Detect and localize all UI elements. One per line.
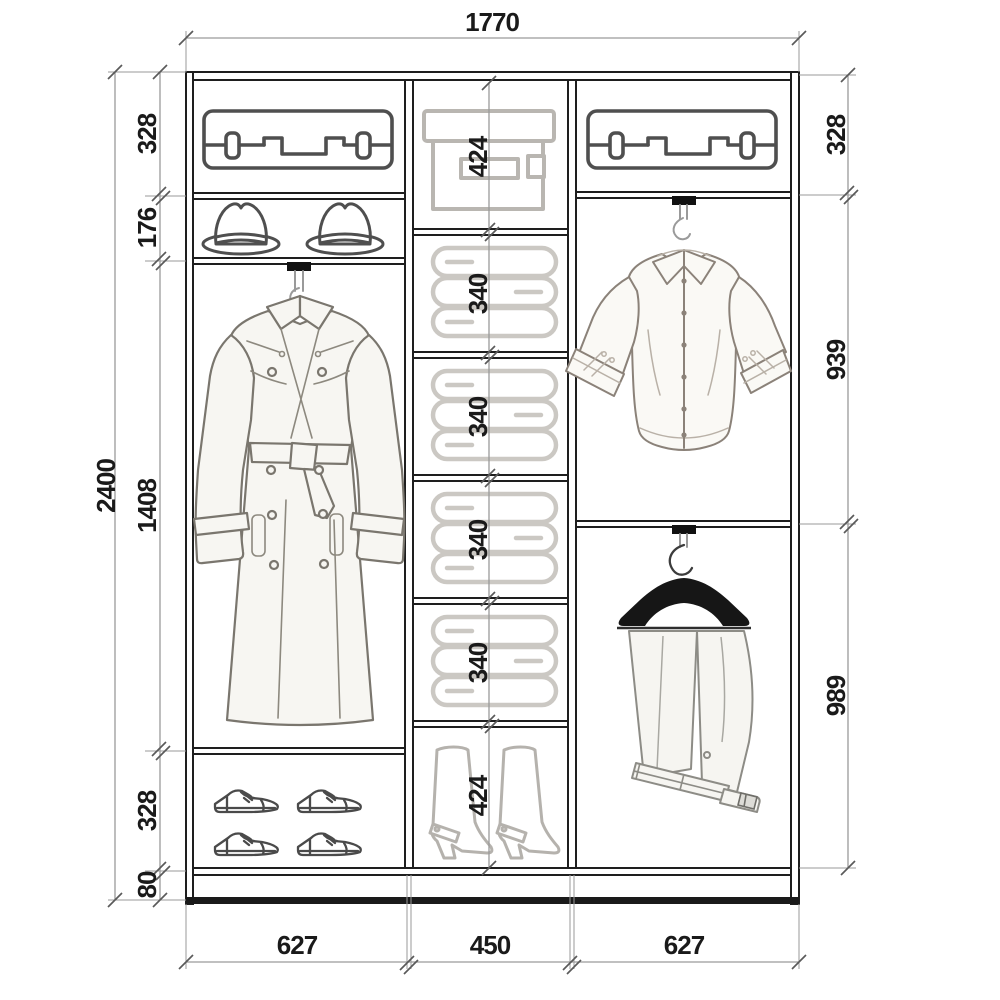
dim-mid-3: 340 — [463, 396, 493, 437]
left-wall — [186, 72, 193, 904]
suitcase-icon — [588, 111, 776, 168]
folded-linen-icon — [433, 371, 556, 459]
fedora-hat-icon — [203, 204, 279, 254]
shelf-mid-2 — [413, 352, 568, 358]
shelf-left-3 — [193, 748, 405, 754]
suitcase-icon — [204, 111, 392, 168]
dim-overall-height: 2400 — [91, 459, 121, 513]
fedora-hat-icon — [307, 204, 383, 254]
divider-right — [568, 80, 576, 868]
dim-left-4: 328 — [132, 790, 162, 831]
dim-mid-4: 340 — [463, 519, 493, 560]
wooden-hanger-icon — [619, 578, 750, 626]
right-wall — [791, 72, 799, 904]
folded-linen-icon — [433, 494, 556, 582]
hanger-rail-icon — [670, 525, 696, 575]
dim-left-1: 328 — [132, 113, 162, 154]
dim-right-1: 328 — [821, 114, 851, 155]
dim-bottom-1: 627 — [277, 930, 318, 960]
hanger-rail-icon — [672, 196, 696, 239]
dim-mid-5: 340 — [463, 642, 493, 683]
dim-left-5: 80 — [132, 871, 162, 898]
dim-overall-width: 1770 — [465, 7, 519, 37]
shelf-mid-3 — [413, 475, 568, 481]
folded-linen-icon — [433, 617, 556, 705]
dress-shoes-icon — [215, 791, 361, 856]
wardrobe-svg: 1770 2400 328 176 1408 328 80 424 340 34… — [0, 0, 1000, 1000]
folded-linen-icon — [433, 248, 556, 336]
wardrobe-drawing: 1770 2400 328 176 1408 328 80 424 340 34… — [0, 0, 1000, 1000]
dim-left-3: 1408 — [132, 479, 162, 533]
bottom-base — [186, 897, 799, 904]
high-boots-icon — [430, 747, 559, 858]
dim-mid-6: 424 — [463, 774, 493, 816]
dim-bottom-2: 450 — [470, 930, 511, 960]
divider-left — [405, 80, 413, 868]
bottom-shelf — [193, 868, 791, 875]
shelf-mid-1 — [413, 229, 568, 235]
shelf-mid-4 — [413, 598, 568, 604]
dim-mid-2: 340 — [463, 273, 493, 314]
dim-right-3: 989 — [821, 675, 851, 716]
dim-mid-1: 424 — [463, 135, 493, 177]
trench-coat-icon — [194, 296, 404, 725]
shelf-mid-5 — [413, 721, 568, 727]
shelf-left-1 — [193, 193, 405, 199]
trousers-icon — [617, 578, 760, 812]
dress-shirt-icon — [566, 250, 791, 450]
dim-bottom-3: 627 — [664, 930, 705, 960]
dim-right-2: 939 — [821, 339, 851, 380]
dim-left-2: 176 — [132, 207, 162, 248]
